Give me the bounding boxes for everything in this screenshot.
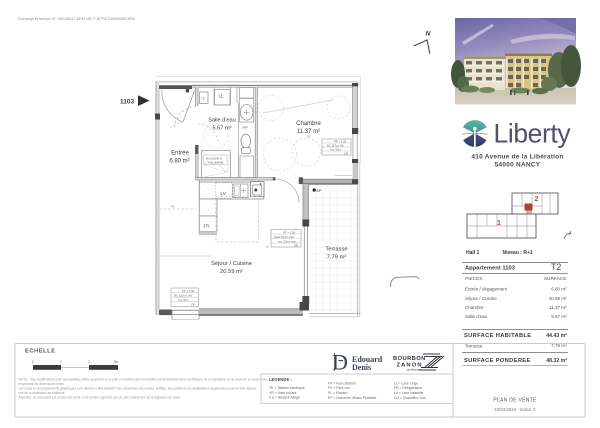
svg-text:2: 2 — [88, 360, 90, 364]
svg-text:PF + 2.50: PF + 2.50 — [334, 139, 347, 143]
svg-text:VR = Volet roulant: VR = Volet roulant — [269, 391, 296, 395]
svg-text:PF + 2.50: PF + 2.50 — [182, 289, 195, 293]
svg-text:1103: 1103 — [120, 99, 134, 106]
svg-text:Chambre: Chambre — [465, 305, 484, 310]
svg-text:PLAN DE VENTE: PLAN DE VENTE — [493, 398, 537, 404]
svg-text:respectant les dimensions fini: respectant les dimensions finies. — [19, 382, 65, 386]
svg-text:Chambre: Chambre — [296, 121, 321, 127]
svg-text:Entrée: Entrée — [171, 151, 189, 157]
svg-text:h.a. 0cm: h.a. 0cm — [178, 298, 189, 302]
svg-text:EP: EP — [317, 189, 323, 193]
svg-text:11.37 m²: 11.37 m² — [549, 305, 567, 310]
svg-text:ECHELLE: ECHELLE — [25, 348, 56, 354]
svg-text:Liberty: Liberty — [494, 119, 572, 149]
svg-text:LV = Lave Vaisselle: LV = Lave Vaisselle — [394, 391, 423, 395]
svg-text:FP: FP — [243, 125, 248, 130]
svg-text:lors de la réalisation du bâti: lors de la réalisation du bâtiment. — [19, 391, 66, 395]
svg-text:PV = Pare vue: PV = Pare vue — [328, 386, 350, 390]
svg-text:TE = Tableau électrique: TE = Tableau électrique — [269, 386, 305, 390]
svg-text:h.a. 92m: h.a. 92m — [330, 147, 342, 151]
svg-text:LEGENDE :: LEGENDE : — [269, 377, 292, 382]
svg-text:20.59 m²: 20.59 m² — [549, 296, 567, 301]
svg-text:Salle d'eau: Salle d'eau — [465, 314, 488, 319]
svg-text:VR: VR — [344, 151, 348, 155]
svg-text:FR.: FR. — [204, 224, 211, 229]
svg-text:Attention, ce document est un: Attention, ce document est un plan de ve… — [19, 395, 182, 399]
svg-text:48.32 m²: 48.32 m² — [546, 358, 567, 364]
svg-text:BOURBON: BOURBON — [393, 356, 426, 362]
svg-text:5.67 m²: 5.67 m² — [551, 314, 567, 319]
svg-text:Appartement 1103: Appartement 1103 — [465, 266, 516, 272]
svg-text:SURFACE: SURFACE — [544, 276, 567, 282]
svg-text:PL = Placard: PL = Placard — [328, 391, 347, 395]
svg-text:1: 1 — [60, 360, 62, 364]
svg-text:7.79 m²: 7.79 m² — [327, 255, 347, 261]
svg-text:20.59 m²: 20.59 m² — [220, 269, 243, 275]
svg-text:TE: TE — [201, 97, 205, 101]
svg-text:FP = Faux plafond: FP = Faux plafond — [328, 381, 356, 385]
svg-text:h.a = Hauteur Allège: h.a = Hauteur Allège — [269, 396, 300, 400]
svg-text:CH = Chaudière Gaz: CH = Chaudière Gaz — [394, 396, 426, 400]
svg-text:SURFACE PONDEREE: SURFACE PONDEREE — [464, 358, 531, 364]
svg-text:1: 1 — [497, 220, 501, 227]
svg-text:Hall 1: Hall 1 — [466, 250, 480, 256]
svg-text:0: 0 — [32, 360, 34, 364]
svg-text:2: 2 — [535, 196, 539, 203]
svg-text:Les cotes et renseignements gr: Les cotes et renseignements graphiques s… — [19, 386, 257, 390]
svg-text:PIECES: PIECES — [465, 276, 483, 282]
svg-text:Terrasse: Terrasse — [325, 247, 347, 253]
svg-text:SURFACE HABITABLE: SURFACE HABITABLE — [464, 333, 531, 339]
svg-text:Entrée / dégagement: Entrée / dégagement — [465, 287, 508, 292]
svg-text:EP = Descente d'Eaux Pluvial: EP = Descente d'Eaux Pluviales — [328, 396, 377, 400]
svg-text:TM: TM — [170, 205, 175, 209]
svg-text:23/04/2024 - indice C: 23/04/2024 - indice C — [494, 407, 536, 412]
svg-text:44.43 m²: 44.43 m² — [546, 333, 567, 339]
svg-text:410 Avenue de la Libération: 410 Avenue de la Libération — [471, 154, 563, 161]
svg-text:Séjour / Cuisine: Séjour / Cuisine — [211, 261, 252, 267]
svg-text:6.80 m²: 6.80 m² — [551, 287, 567, 292]
svg-text:Niveau : R+1: Niveau : R+1 — [503, 250, 533, 256]
svg-text:LL: LL — [219, 94, 224, 99]
svg-text:NOTE : Des modifications sont: NOTE : Des modifications sont susceptibl… — [19, 377, 268, 381]
svg-text:Seuil 20cm max: Seuil 20cm max — [274, 235, 294, 239]
svg-text:Salle d'eau: Salle d'eau — [208, 118, 236, 124]
svg-text:Denis: Denis — [352, 363, 371, 372]
svg-text:LL = Lave Linge: LL = Lave Linge — [394, 381, 418, 385]
svg-text:Terrasse: Terrasse — [465, 344, 483, 349]
svg-text:6.80 m²: 6.80 m² — [169, 159, 189, 165]
svg-text:Séjour / Cuisine: Séjour / Cuisine — [465, 296, 497, 301]
svg-text:L'ITALIENNE: L'ITALIENNE — [206, 160, 224, 164]
svg-text:FR = Réfrigérateur: FR = Réfrigérateur — [394, 386, 423, 390]
svg-text:BC 120cm (H): BC 120cm (H) — [174, 294, 192, 298]
svg-text:VR: VR — [191, 303, 195, 307]
svg-text:VR: VR — [307, 135, 311, 139]
svg-text:PF + 2.50: PF + 2.50 — [283, 230, 296, 234]
svg-text:3m: 3m — [114, 360, 119, 364]
svg-text:Docusign Envelope ID: 9AF48247: Docusign Envelope ID: 9AF48247-AF41-4E77… — [18, 17, 135, 21]
svg-text:T2: T2 — [551, 262, 561, 272]
svg-text:54000 NANCY: 54000 NANCY — [495, 162, 541, 169]
svg-text:5.67 m²: 5.67 m² — [213, 126, 232, 132]
svg-text:VR: VR — [294, 244, 298, 248]
